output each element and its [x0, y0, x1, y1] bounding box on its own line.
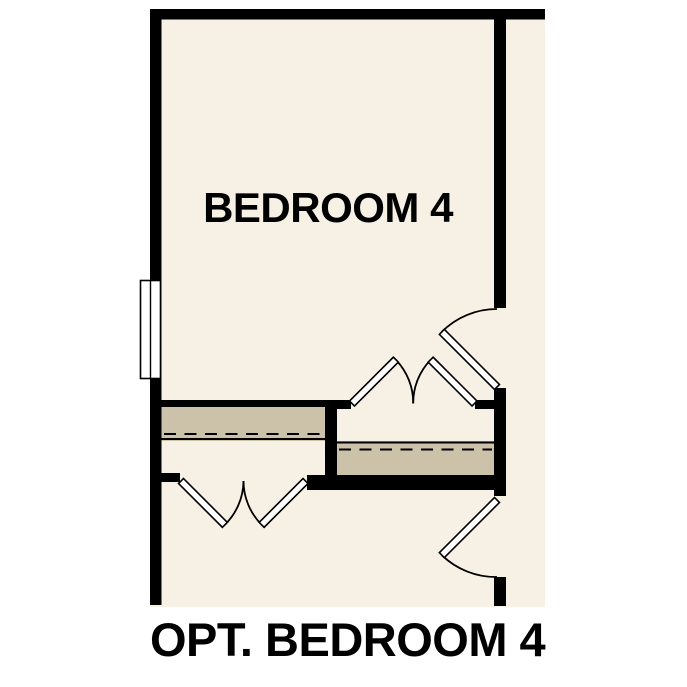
wall-right-lower [494, 577, 506, 606]
wall-top [150, 9, 545, 20]
floor-plan: BEDROOM 4 OPT. BEDROOM 4 [0, 0, 687, 687]
closet-shelf-right [337, 441, 494, 475]
plan-caption: OPT. BEDROOM 4 [150, 615, 545, 664]
wall-south [307, 475, 506, 490]
wall-closet-north-stub [475, 400, 506, 409]
wall-right-upper [494, 9, 506, 308]
room-label: BEDROOM 4 [150, 186, 506, 230]
wall-south-stub [150, 473, 180, 482]
floor-plan-drawing [0, 0, 687, 687]
closet-shelf-left [162, 407, 326, 441]
